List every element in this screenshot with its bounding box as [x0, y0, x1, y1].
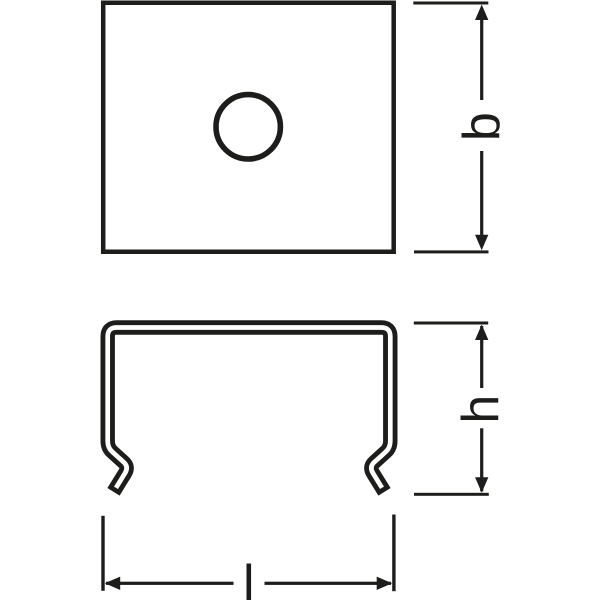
svg-text:h: h — [452, 395, 510, 424]
svg-text:l: l — [243, 555, 255, 600]
svg-text:b: b — [453, 112, 511, 141]
